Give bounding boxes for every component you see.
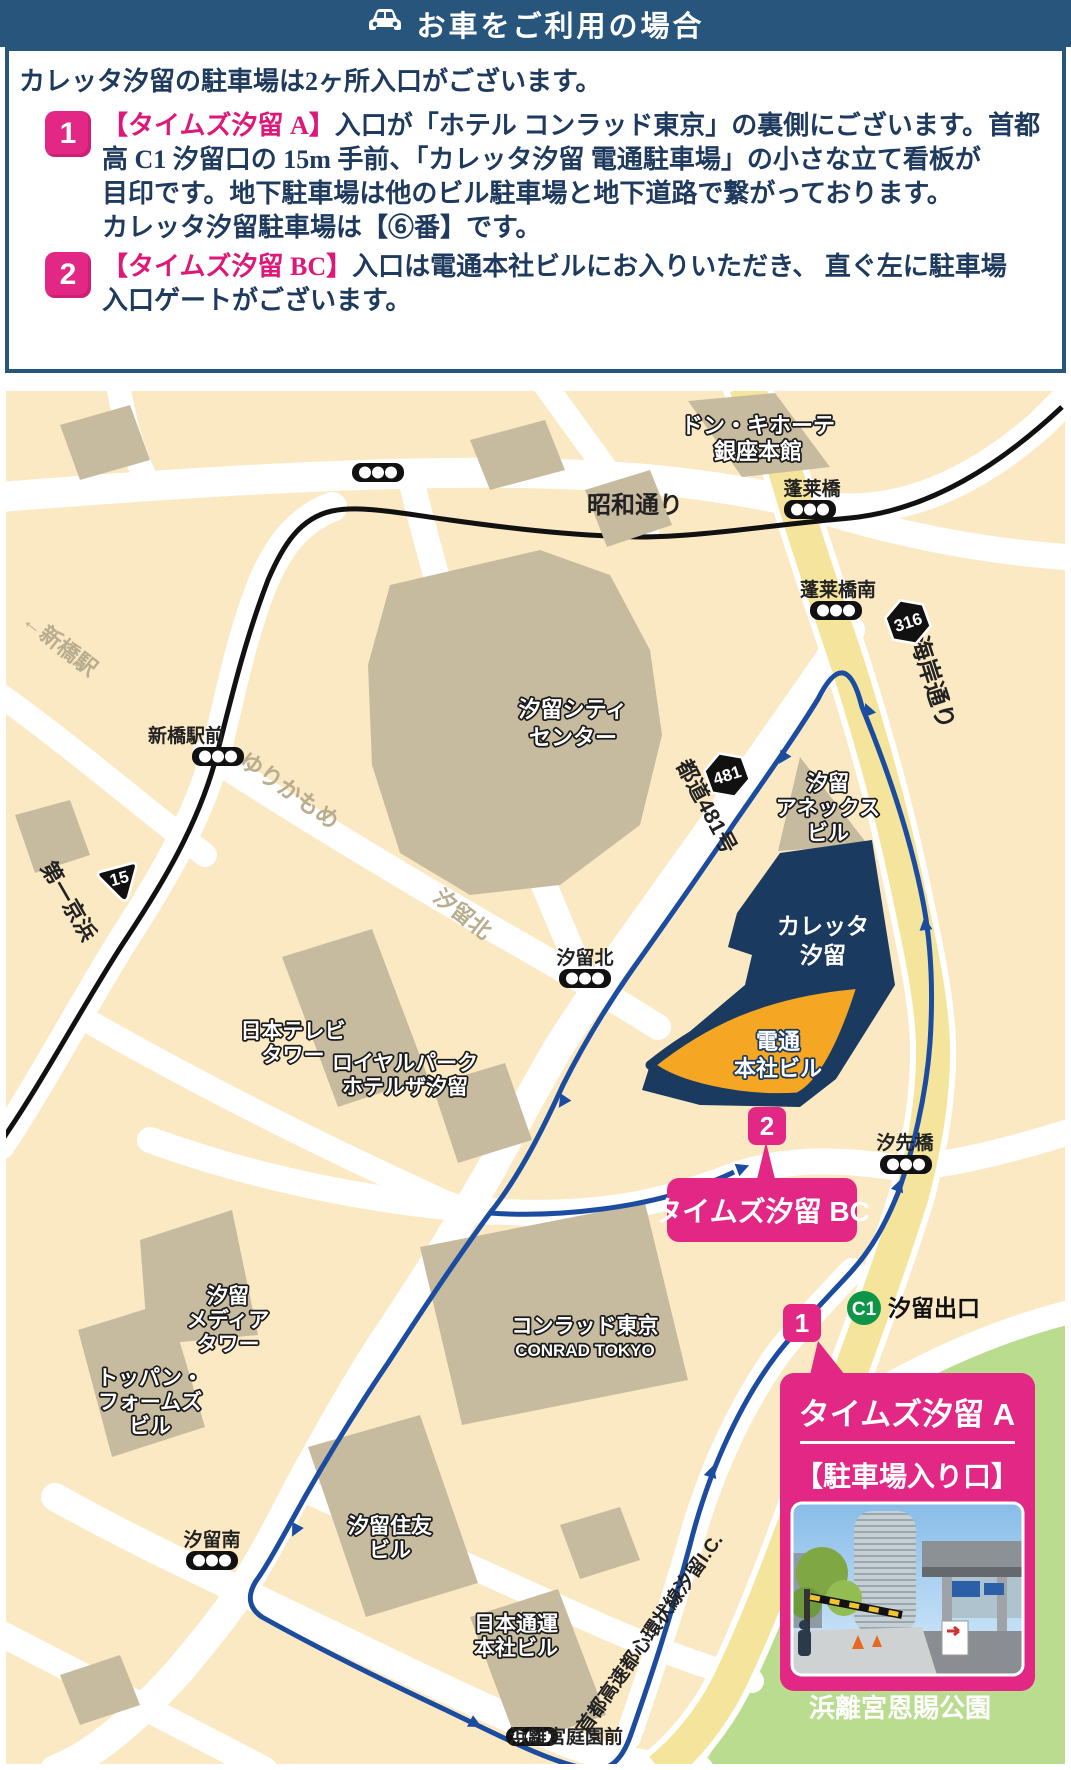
signal-horaibashi: 蓬莱橋	[783, 477, 841, 519]
label-dentsu-2: 本社ビル	[734, 1056, 822, 1081]
signal-shiodome-kita: 汐留北	[556, 946, 613, 988]
label-toppan-1: トッパン・	[97, 1367, 203, 1390]
signal-hamarikyu-teien-mae: 浜離宮庭園前	[506, 1725, 623, 1748]
signal-shiosakibashi: 汐先橋	[876, 1131, 934, 1174]
times-shiodome-bc-label: タイムズ汐留 BC	[654, 1195, 870, 1227]
svg-text:浜離宮庭園前: 浜離宮庭園前	[509, 1725, 623, 1748]
badge-c1-exit: C1 汐留出口	[847, 1291, 980, 1325]
label-city-center-2: センター	[529, 725, 617, 750]
signal-unlabeled	[352, 463, 404, 482]
label-royalpark-1: ロイヤルパーク	[332, 1052, 478, 1075]
svg-text:汐留北: 汐留北	[556, 946, 613, 969]
title-bar: お車をご利用の場合	[0, 0, 1071, 47]
label-dentsu-1: 電通	[756, 1029, 800, 1054]
car-icon	[366, 8, 404, 39]
label-nittsu-1: 日本通運	[474, 1613, 558, 1636]
label-hamarikyu-park: 浜離宮恩賜公園	[809, 1693, 991, 1723]
label-nittele-2: タワー	[262, 1044, 325, 1067]
label-sumitomo-2: ビル	[369, 1539, 411, 1562]
svg-text:汐先橋: 汐先橋	[876, 1131, 934, 1154]
marker-1-number: 1	[795, 1308, 809, 1338]
signal-shiodome-minami: 汐留南	[183, 1528, 240, 1570]
instruction-box: カレッタ汐留の駐車場は2ヶ所入口がございます。 1 【タイムズ汐留 A】入口が「…	[5, 47, 1066, 373]
label-annex-2: アネックス	[776, 797, 880, 820]
item-1-highlight: 【タイムズ汐留 A】	[102, 111, 335, 140]
item-2-text: 【タイムズ汐留 BC】入口は電通本社ビルにお入りいただき、 直ぐ左に駐車場 入口…	[102, 250, 1052, 318]
label-nittsu-2: 本社ビル	[474, 1636, 558, 1660]
label-nittele-1: 日本テレビ	[241, 1020, 346, 1043]
item-1-line-1: 【タイムズ汐留 A】入口が「ホテル コンラッド東京」の裏側にございます。首都	[102, 109, 1052, 143]
label-toppan-3: ビル	[129, 1415, 171, 1438]
marker-2-number: 2	[760, 1111, 774, 1141]
item-1-line-1-rest: 入口が「ホテル コンラッド東京」の裏側にございます。首都	[335, 111, 1040, 140]
label-conrad-1: コンラッド東京	[512, 1314, 659, 1338]
label-media-3: タワー	[197, 1333, 260, 1356]
page: お車をご利用の場合 カレッタ汐留の駐車場は2ヶ所入口がございます。 1 【タイム…	[0, 0, 1071, 1770]
label-showa-dori: 昭和通り	[587, 492, 683, 519]
label-shiodome-exit: 汐留出口	[888, 1295, 980, 1321]
label-media-1: 汐留	[207, 1284, 249, 1308]
svg-text:C1: C1	[852, 1299, 877, 1320]
times-shiodome-a-title: タイムズ汐留 A	[799, 1397, 1015, 1432]
item-2-line-1: 【タイムズ汐留 BC】入口は電通本社ビルにお入りいただき、 直ぐ左に駐車場	[102, 250, 1052, 284]
item-1-text: 【タイムズ汐留 A】入口が「ホテル コンラッド東京」の裏側にございます。首都 高…	[102, 109, 1052, 245]
label-conrad-2: CONRAD TOKYO	[515, 1341, 654, 1360]
item-2-highlight: 【タイムズ汐留 BC】	[102, 252, 352, 281]
svg-text:蓬莱橋: 蓬莱橋	[783, 477, 841, 500]
page-title: お車をご利用の場合	[416, 3, 704, 45]
label-toppan-2: フォームズ	[98, 1390, 202, 1414]
item-1-line-3: 目印です。地下駐車場は他のビル駐車場と地下道路で繋がっております。	[102, 177, 1052, 211]
label-city-center-1: 汐留シティ	[519, 697, 628, 722]
label-caretta-2: 汐留	[800, 942, 846, 968]
svg-text:新橋駅前: 新橋駅前	[148, 724, 224, 747]
parking-entrance-label: 【駐車場入り口】	[795, 1461, 1019, 1492]
intro-text: カレッタ汐留の駐車場は2ヶ所入口がございます。	[19, 61, 601, 98]
item-2-line-1-rest: 入口は電通本社ビルにお入りいただき、 直ぐ左に駐車場	[352, 252, 1007, 281]
times-shiodome-a-divider	[800, 1441, 1015, 1444]
item-2-line-2: 入口ゲートがございます。	[102, 284, 1052, 318]
label-annex-3: ビル	[807, 822, 849, 845]
item-2-number-badge: 2	[45, 252, 91, 298]
label-annex-1: 汐留	[807, 771, 849, 795]
access-map: 昭和通り 海岸通り 第一京浜 都道481号 ゆりかもめ 汐留北 首都高速都心環状…	[0, 385, 1071, 1770]
label-donki-2: 銀座本館	[714, 439, 802, 464]
label-donki-1: ドン・キホーテ	[681, 413, 835, 438]
svg-text:汐留南: 汐留南	[183, 1528, 240, 1551]
item-1-number-badge: 1	[45, 111, 91, 157]
label-royalpark-2: ホテルザ汐留	[342, 1075, 468, 1099]
label-sumitomo-1: 汐留住友	[348, 1514, 432, 1538]
svg-text:蓬莱橋南: 蓬莱橋南	[800, 578, 876, 601]
item-1-line-2: 高 C1 汐留口の 15m 手前、「カレッタ汐留 電通駐車場」の小さな立て看板が	[102, 143, 1052, 177]
item-1-line-4: カレッタ汐留駐車場は【⑥番】です。	[102, 211, 1052, 245]
label-media-2: メディア	[187, 1308, 270, 1332]
label-caretta-1: カレッタ	[777, 913, 869, 939]
parking-entrance-photo	[790, 1503, 1023, 1675]
